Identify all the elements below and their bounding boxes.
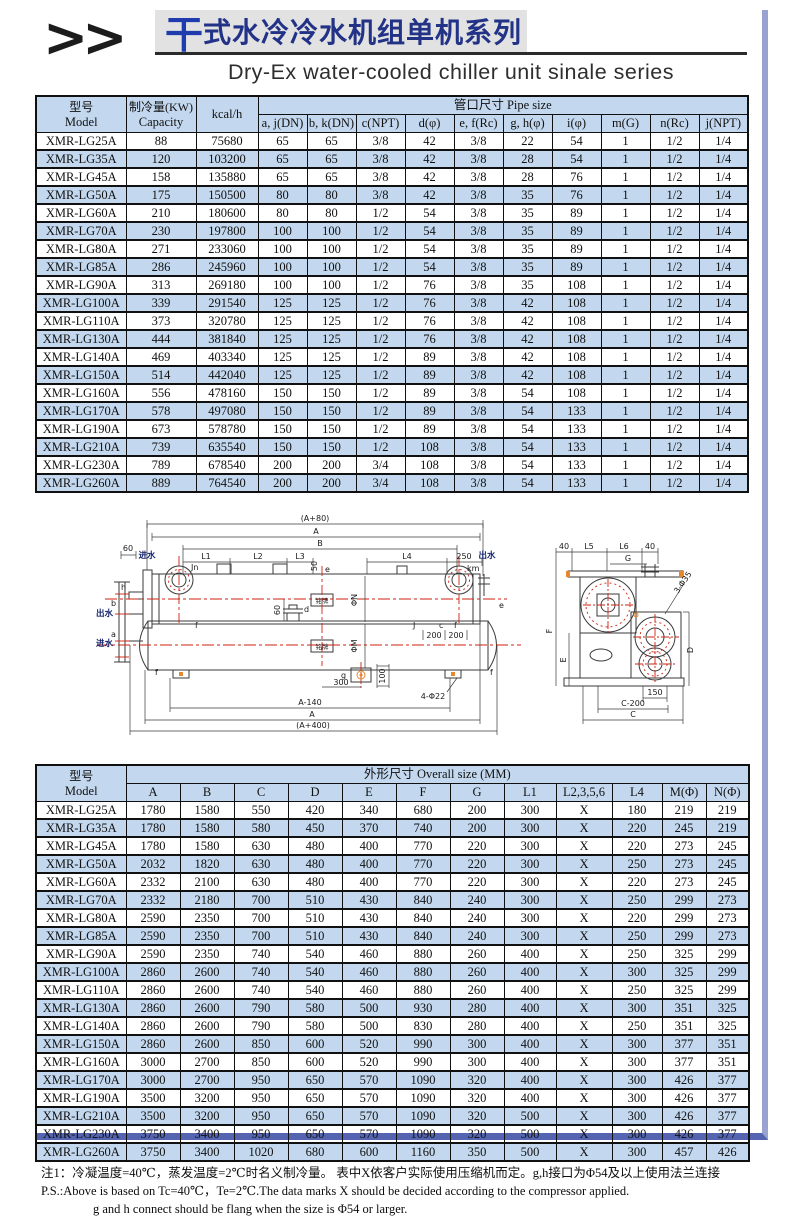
value-cell: 1 — [601, 240, 650, 258]
value-cell: 300 — [504, 891, 556, 909]
table-row: XMR-LG45A15813588065653/8423/8287611/21/… — [36, 168, 748, 186]
value-cell: 54 — [503, 384, 552, 402]
value-cell: 700 — [234, 927, 288, 945]
value-cell: 22 — [503, 133, 552, 151]
value-cell: 125 — [307, 348, 356, 366]
value-cell: 700 — [234, 891, 288, 909]
value-cell: 54 — [405, 258, 454, 276]
value-cell: 89 — [405, 366, 454, 384]
value-cell: 3/8 — [454, 204, 503, 222]
table-row: XMR-LG170A5784970801501501/2893/85413311… — [36, 402, 748, 420]
page-subtitle-en: Dry-Ex water-cooled chiller unit sinale … — [155, 60, 747, 85]
value-cell: 2100 — [180, 873, 234, 891]
header-model-2: 型号Model — [36, 765, 126, 802]
value-cell: 325 — [662, 945, 706, 963]
label-f3: f — [490, 668, 493, 677]
value-cell: 1 — [601, 384, 650, 402]
value-cell: X — [556, 802, 612, 820]
value-cell: 299 — [662, 891, 706, 909]
table-row: XMR-LG160A5564781601501501/2893/85410811… — [36, 384, 748, 402]
value-cell: 240 — [450, 909, 504, 927]
value-cell: 580 — [288, 1017, 342, 1035]
value-cell: 220 — [612, 873, 662, 891]
value-cell: 540 — [288, 945, 342, 963]
dim-e-label: E — [559, 657, 568, 662]
value-cell: 370 — [342, 819, 396, 837]
model-cell: XMR-LG50A — [36, 186, 126, 204]
value-cell: 1/4 — [699, 330, 748, 348]
value-cell: 42 — [503, 348, 552, 366]
label-d: d — [304, 605, 309, 614]
dim-200a-label: 200 — [426, 631, 441, 640]
value-cell: 1/2 — [356, 204, 405, 222]
value-cell: 300 — [504, 837, 556, 855]
label-f1: f — [195, 621, 198, 630]
value-cell: 250 — [612, 927, 662, 945]
value-cell: 125 — [258, 348, 307, 366]
value-cell: 2600 — [180, 1035, 234, 1053]
model-cell: XMR-LG230A — [36, 1125, 126, 1143]
value-cell: 219 — [662, 802, 706, 820]
value-cell: 245 — [706, 855, 749, 873]
value-cell: 200 — [307, 456, 356, 474]
value-cell: 3/8 — [356, 168, 405, 186]
value-cell: 1/4 — [699, 133, 748, 151]
value-cell: 76 — [405, 294, 454, 312]
value-cell: 351 — [662, 1017, 706, 1035]
value-cell: 520 — [342, 1053, 396, 1071]
value-cell: 3400 — [180, 1125, 234, 1143]
value-cell: 250 — [612, 945, 662, 963]
dim-d-label: D — [686, 647, 695, 653]
table-row: XMR-LG150A28602600850600520990300400X300… — [36, 1035, 749, 1053]
value-cell: 3/8 — [454, 186, 503, 204]
value-cell: 1/4 — [699, 186, 748, 204]
footnotes: 注1：冷凝温度=40℃，蒸发温度=2℃时名义制冷量。 表中X依客户实际使用压缩机… — [35, 1165, 762, 1218]
value-cell: 1160 — [396, 1143, 450, 1161]
value-cell: 300 — [504, 802, 556, 820]
value-cell: 880 — [396, 981, 450, 999]
value-cell: 150 — [307, 420, 356, 438]
value-cell: 600 — [288, 1035, 342, 1053]
value-cell: 35 — [503, 186, 552, 204]
value-cell: 108 — [552, 330, 601, 348]
value-cell: 1/4 — [699, 348, 748, 366]
value-cell: X — [556, 999, 612, 1017]
value-cell: 400 — [504, 1035, 556, 1053]
value-cell: 1 — [601, 186, 650, 204]
value-cell: 1/4 — [699, 222, 748, 240]
value-cell: 3200 — [180, 1107, 234, 1125]
table-row: XMR-LG230A375034009506505701090320500X30… — [36, 1125, 749, 1143]
value-cell: 400 — [342, 855, 396, 873]
value-cell: 740 — [234, 945, 288, 963]
model-cell: XMR-LG210A — [36, 1107, 126, 1125]
model-cell: XMR-LG35A — [36, 819, 126, 837]
value-cell: 300 — [612, 999, 662, 1017]
value-cell: X — [556, 945, 612, 963]
value-cell: 1/2 — [356, 240, 405, 258]
value-cell: 850 — [234, 1035, 288, 1053]
value-cell: 54 — [405, 222, 454, 240]
value-cell: 1780 — [126, 802, 180, 820]
value-cell: 1/2 — [650, 312, 699, 330]
value-cell: 3/8 — [454, 150, 503, 168]
value-cell: 280 — [450, 1017, 504, 1035]
dim-250-label: 250 — [456, 552, 471, 561]
model-cell: XMR-LG85A — [36, 258, 126, 276]
header-bk: b, k(DN) — [307, 115, 356, 133]
value-cell: 42 — [503, 330, 552, 348]
label-h: h — [121, 583, 126, 592]
value-cell: 3/8 — [356, 150, 405, 168]
header-kcal: kcal/h — [196, 96, 258, 133]
value-cell: 1090 — [396, 1089, 450, 1107]
value-cell: 269180 — [196, 276, 258, 294]
value-cell: 150 — [258, 402, 307, 420]
value-cell: 680 — [288, 1143, 342, 1161]
value-cell: 400 — [504, 981, 556, 999]
footnote-line1: 注1：冷凝温度=40℃，蒸发温度=2℃时名义制冷量。 表中X依客户实际使用压缩机… — [41, 1165, 762, 1183]
value-cell: 500 — [504, 1143, 556, 1161]
value-cell: 300 — [612, 1089, 662, 1107]
value-cell: 35 — [503, 222, 552, 240]
value-cell: 125 — [258, 366, 307, 384]
value-cell: 1/4 — [699, 204, 748, 222]
model-cell: XMR-LG210A — [36, 438, 126, 456]
value-cell: 3/8 — [454, 222, 503, 240]
value-cell: 1 — [601, 276, 650, 294]
value-cell: 2332 — [126, 891, 180, 909]
dim-l4-label: L4 — [402, 552, 412, 561]
value-cell: 273 — [662, 837, 706, 855]
model-cell: XMR-LG25A — [36, 133, 126, 151]
dim-40l-label: 40 — [559, 542, 569, 551]
value-cell: 550 — [234, 802, 288, 820]
table-row: XMR-LG25A887568065653/8423/8225411/21/4 — [36, 133, 748, 151]
table-row: XMR-LG190A6735787801501501/2893/85413311… — [36, 420, 748, 438]
value-cell: 2590 — [126, 945, 180, 963]
value-cell: 65 — [258, 133, 307, 151]
table-row: XMR-LG100A28602600740540460880260400X300… — [36, 963, 749, 981]
dim-200b-label: 200 — [448, 631, 463, 640]
value-cell: 220 — [450, 837, 504, 855]
value-cell: 76 — [552, 168, 601, 186]
value-cell: 1/4 — [699, 474, 748, 492]
value-cell: 76 — [552, 186, 601, 204]
value-cell: 600 — [288, 1053, 342, 1071]
value-cell: 300 — [504, 909, 556, 927]
value-cell: 220 — [450, 873, 504, 891]
model-cell: XMR-LG150A — [36, 366, 126, 384]
value-cell: 950 — [234, 1107, 288, 1125]
table-row: XMR-LG80A25902350700510430840240300X2202… — [36, 909, 749, 927]
value-cell: 100 — [307, 276, 356, 294]
value-cell: 245 — [706, 837, 749, 855]
model-cell: XMR-LG60A — [36, 204, 126, 222]
value-cell: 3/8 — [454, 240, 503, 258]
value-cell: 200 — [450, 819, 504, 837]
value-cell: 42 — [503, 312, 552, 330]
inlet-top-label: 进水 — [138, 550, 156, 561]
value-cell: 325 — [662, 963, 706, 981]
value-cell: 770 — [396, 873, 450, 891]
value-cell: 1/4 — [699, 312, 748, 330]
value-cell: 75680 — [196, 133, 258, 151]
value-cell: 1/4 — [699, 168, 748, 186]
value-cell: 400 — [504, 1053, 556, 1071]
header-dim-m: M(Φ) — [662, 784, 706, 802]
value-cell: 630 — [234, 873, 288, 891]
value-cell: 570 — [342, 1071, 396, 1089]
value-cell: X — [556, 1053, 612, 1071]
pipe-size-table: 型号Model 制冷量(KW)Capacity kcal/h 管口尺寸 Pipe… — [35, 95, 749, 493]
value-cell: 133 — [552, 438, 601, 456]
value-cell: 300 — [450, 1035, 504, 1053]
title-accent-char: 干 — [165, 4, 203, 59]
value-cell: 580 — [234, 819, 288, 837]
value-cell: 54 — [503, 456, 552, 474]
table-row: XMR-LG70A23322180700510430840240300X2502… — [36, 891, 749, 909]
value-cell: 200 — [307, 474, 356, 492]
table-row: XMR-LG90A25902350740540460880260400X2503… — [36, 945, 749, 963]
value-cell: 789 — [126, 456, 196, 474]
value-cell: 403340 — [196, 348, 258, 366]
dim-g-label: G — [625, 554, 631, 563]
dim-60-label: 60 — [123, 544, 133, 553]
value-cell: 1/4 — [699, 258, 748, 276]
value-cell: 2590 — [126, 909, 180, 927]
value-cell: 1/2 — [356, 366, 405, 384]
value-cell: 650 — [288, 1107, 342, 1125]
dim-l5-label: L5 — [584, 542, 594, 551]
value-cell: 950 — [234, 1125, 288, 1143]
model-cell: XMR-LG45A — [36, 837, 126, 855]
value-cell: 100 — [258, 276, 307, 294]
value-cell: 299 — [706, 963, 749, 981]
value-cell: 300 — [612, 1125, 662, 1143]
value-cell: 1 — [601, 150, 650, 168]
value-cell: 3/8 — [356, 133, 405, 151]
value-cell: 65 — [307, 133, 356, 151]
table-row: XMR-LG140A28602600790580500830280400X250… — [36, 1017, 749, 1035]
value-cell: 1/4 — [699, 276, 748, 294]
value-cell: 426 — [662, 1071, 706, 1089]
value-cell: 260 — [450, 963, 504, 981]
value-cell: 313 — [126, 276, 196, 294]
value-cell: 480 — [288, 873, 342, 891]
value-cell: 460 — [342, 981, 396, 999]
value-cell: 630 — [234, 855, 288, 873]
value-cell: 1 — [601, 222, 650, 240]
value-cell: 3/8 — [454, 312, 503, 330]
value-cell: 1/4 — [699, 240, 748, 258]
value-cell: 300 — [612, 1143, 662, 1161]
model-cell: XMR-LG90A — [36, 276, 126, 294]
value-cell: 373 — [126, 312, 196, 330]
value-cell: X — [556, 891, 612, 909]
value-cell: 1/2 — [356, 258, 405, 276]
value-cell: 88 — [126, 133, 196, 151]
value-cell: 108 — [552, 276, 601, 294]
dim-c-label: C — [630, 710, 636, 719]
header-i: i(φ) — [552, 115, 601, 133]
value-cell: 3/8 — [454, 168, 503, 186]
technical-drawing: (A+80) A B L1 L2 L3 L4 250 进水 出水 Jn km 6… — [35, 494, 762, 762]
value-cell: 650 — [288, 1125, 342, 1143]
value-cell: 100 — [307, 222, 356, 240]
value-cell: 2860 — [126, 981, 180, 999]
header-model-en: Model — [65, 115, 98, 129]
model-cell: XMR-LG190A — [36, 1089, 126, 1107]
header-dim-g: G — [450, 784, 504, 802]
value-cell: 790 — [234, 1017, 288, 1035]
value-cell: 150 — [258, 420, 307, 438]
value-cell: 3/8 — [454, 438, 503, 456]
table-row: XMR-LG85A2862459601001001/2543/8358911/2… — [36, 258, 748, 276]
value-cell: 175 — [126, 186, 196, 204]
value-cell: 150500 — [196, 186, 258, 204]
value-cell: 180600 — [196, 204, 258, 222]
table-row: XMR-LG90A3132691801001001/2763/83510811/… — [36, 276, 748, 294]
value-cell: 377 — [662, 1053, 706, 1071]
value-cell: 299 — [662, 927, 706, 945]
value-cell: 42 — [405, 186, 454, 204]
value-cell: 1/2 — [650, 348, 699, 366]
model-cell: XMR-LG50A — [36, 855, 126, 873]
value-cell: 325 — [706, 1017, 749, 1035]
header-dim-l2356: L2,3,5,6 — [556, 784, 612, 802]
value-cell: 840 — [396, 891, 450, 909]
inlet-left-label: 进水 — [96, 638, 114, 649]
value-cell: 300 — [612, 1053, 662, 1071]
table-row: XMR-LG210A350032009506505701090320500X30… — [36, 1107, 749, 1125]
value-cell: 210 — [126, 204, 196, 222]
outlet-left-label: 出水 — [96, 608, 114, 619]
value-cell: 510 — [288, 891, 342, 909]
value-cell: 133 — [552, 420, 601, 438]
value-cell: X — [556, 963, 612, 981]
value-cell: 180 — [612, 802, 662, 820]
model-cell: XMR-LG80A — [36, 240, 126, 258]
value-cell: X — [556, 1071, 612, 1089]
value-cell: 1/2 — [650, 384, 699, 402]
label-a: a — [111, 630, 116, 639]
value-cell: 325 — [706, 999, 749, 1017]
value-cell: 133 — [552, 402, 601, 420]
value-cell: 1/4 — [699, 438, 748, 456]
dim-60v-label: 60 — [273, 605, 282, 615]
value-cell: 740 — [234, 963, 288, 981]
value-cell: X — [556, 1017, 612, 1035]
value-cell: 300 — [504, 873, 556, 891]
value-cell: 291540 — [196, 294, 258, 312]
value-cell: 400 — [504, 1017, 556, 1035]
value-cell: 377 — [706, 1071, 749, 1089]
model-cell: XMR-LG100A — [36, 294, 126, 312]
value-cell: 510 — [288, 909, 342, 927]
value-cell: 100 — [307, 258, 356, 276]
dim-a-top-label: A — [313, 527, 319, 536]
dim-b-label: B — [317, 539, 323, 548]
table-row: XMR-LG130A28602600790580500930280400X300… — [36, 999, 749, 1017]
value-cell: 1/4 — [699, 402, 748, 420]
value-cell: 540 — [288, 963, 342, 981]
table-row: XMR-LG230A7896785402002003/41083/8541331… — [36, 456, 748, 474]
value-cell: 108 — [405, 456, 454, 474]
value-cell: 830 — [396, 1017, 450, 1035]
value-cell: 3/8 — [454, 384, 503, 402]
value-cell: 133 — [552, 456, 601, 474]
dim-a400-label: (A+400) — [296, 721, 330, 730]
km-label: km — [467, 564, 480, 573]
value-cell: X — [556, 837, 612, 855]
value-cell: 3400 — [180, 1143, 234, 1161]
value-cell: 381840 — [196, 330, 258, 348]
value-cell: 125 — [307, 366, 356, 384]
value-cell: 3/4 — [356, 474, 405, 492]
value-cell: 3/8 — [454, 456, 503, 474]
value-cell: 770 — [396, 837, 450, 855]
value-cell: 1/2 — [650, 402, 699, 420]
value-cell: 500 — [504, 1125, 556, 1143]
value-cell: 2600 — [180, 1017, 234, 1035]
value-cell: 150 — [258, 438, 307, 456]
value-cell: 3/8 — [454, 348, 503, 366]
value-cell: 300 — [612, 963, 662, 981]
model-cell: XMR-LG170A — [36, 1071, 126, 1089]
value-cell: 400 — [504, 963, 556, 981]
model-cell: XMR-LG60A — [36, 873, 126, 891]
value-cell: 351 — [706, 1035, 749, 1053]
value-cell: 1/4 — [699, 294, 748, 312]
value-cell: 556 — [126, 384, 196, 402]
header-ef: e, f(Rc) — [454, 115, 503, 133]
model-cell: XMR-LG160A — [36, 384, 126, 402]
header-dim-l4: L4 — [612, 784, 662, 802]
value-cell: 1/2 — [356, 276, 405, 294]
value-cell: 1090 — [396, 1071, 450, 1089]
value-cell: 158 — [126, 168, 196, 186]
value-cell: 3750 — [126, 1143, 180, 1161]
value-cell: 1/2 — [650, 438, 699, 456]
model-cell: XMR-LG130A — [36, 330, 126, 348]
value-cell: 1580 — [180, 819, 234, 837]
dim-3phi35-label: 3-Φ35 — [672, 570, 693, 595]
header-dim-c: C — [234, 784, 288, 802]
value-cell: 1780 — [126, 819, 180, 837]
header-dim-n: N(Φ) — [706, 784, 749, 802]
value-cell: 1/2 — [650, 276, 699, 294]
value-cell: 1580 — [180, 837, 234, 855]
label-e: e — [325, 565, 330, 574]
value-cell: 35 — [503, 204, 552, 222]
value-cell: 500 — [342, 1017, 396, 1035]
value-cell: 1 — [601, 420, 650, 438]
page-title-cn: 干式水冷冷水机组单机系列 — [155, 10, 527, 52]
value-cell: 150 — [258, 384, 307, 402]
value-cell: 89 — [405, 420, 454, 438]
value-cell: 80 — [307, 186, 356, 204]
value-cell: 250 — [612, 1017, 662, 1035]
value-cell: 1 — [601, 330, 650, 348]
value-cell: 320780 — [196, 312, 258, 330]
value-cell: X — [556, 1143, 612, 1161]
value-cell: 400 — [504, 945, 556, 963]
label-f4: f — [155, 668, 158, 677]
value-cell: 950 — [234, 1071, 288, 1089]
value-cell: 1/2 — [356, 402, 405, 420]
